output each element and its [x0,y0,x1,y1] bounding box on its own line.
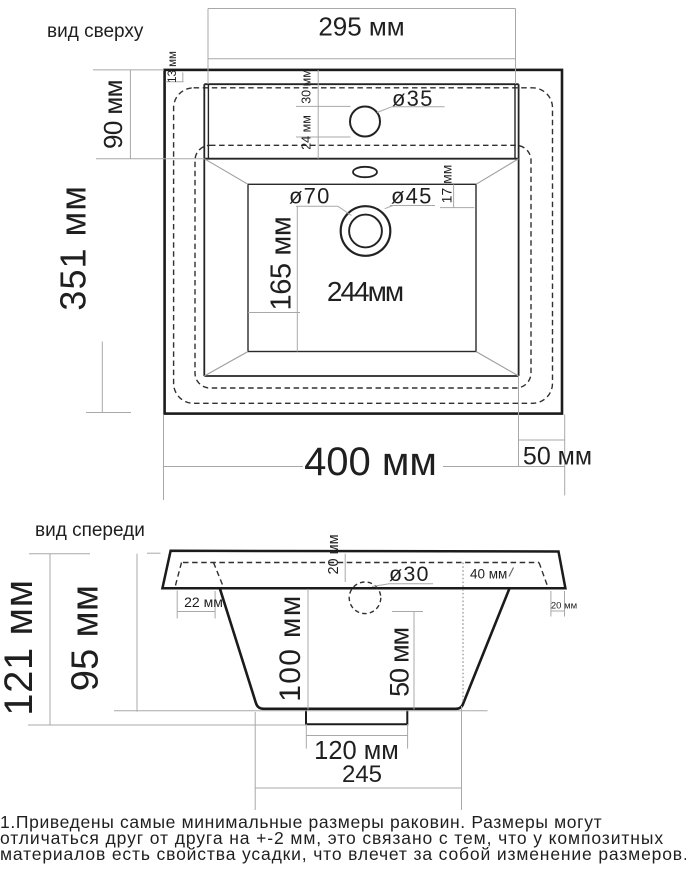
svg-text:17 мм: 17 мм [438,165,454,204]
svg-text:351 мм: 351 мм [53,185,94,311]
svg-text:13 мм: 13 мм [167,51,179,83]
svg-text:100 мм: 100 мм [274,594,307,701]
svg-text:40 мм: 40 мм [470,567,507,582]
svg-text:50 мм: 50 мм [385,628,415,697]
svg-text:165 мм: 165 мм [266,217,298,311]
svg-text:ø70: ø70 [289,184,331,209]
svg-text:90 мм: 90 мм [98,80,128,149]
svg-text:20 мм: 20 мм [326,534,342,574]
svg-text:ø30: ø30 [389,562,430,586]
svg-text:121 мм: 121 мм [0,579,41,715]
svg-text:244мм: 244мм [327,276,403,307]
svg-text:245: 245 [342,761,382,788]
svg-text:вид спереди: вид спереди [35,520,145,541]
svg-text:95 мм: 95 мм [64,585,106,692]
svg-text:22 мм: 22 мм [184,594,223,610]
svg-text:ø45: ø45 [391,184,433,209]
svg-text:295 мм: 295 мм [318,11,404,41]
svg-text:ø35: ø35 [392,86,434,111]
svg-text:вид сверху: вид сверху [47,21,144,42]
svg-text:материалов есть свойства усадк: материалов есть свойства усадки, что вле… [0,844,686,864]
svg-text:400 мм: 400 мм [304,440,437,484]
svg-text:20 мм: 20 мм [551,600,577,611]
svg-text:50 мм: 50 мм [523,443,592,471]
svg-text:30 мм: 30 мм [300,69,314,104]
svg-text:24 мм: 24 мм [300,115,314,150]
